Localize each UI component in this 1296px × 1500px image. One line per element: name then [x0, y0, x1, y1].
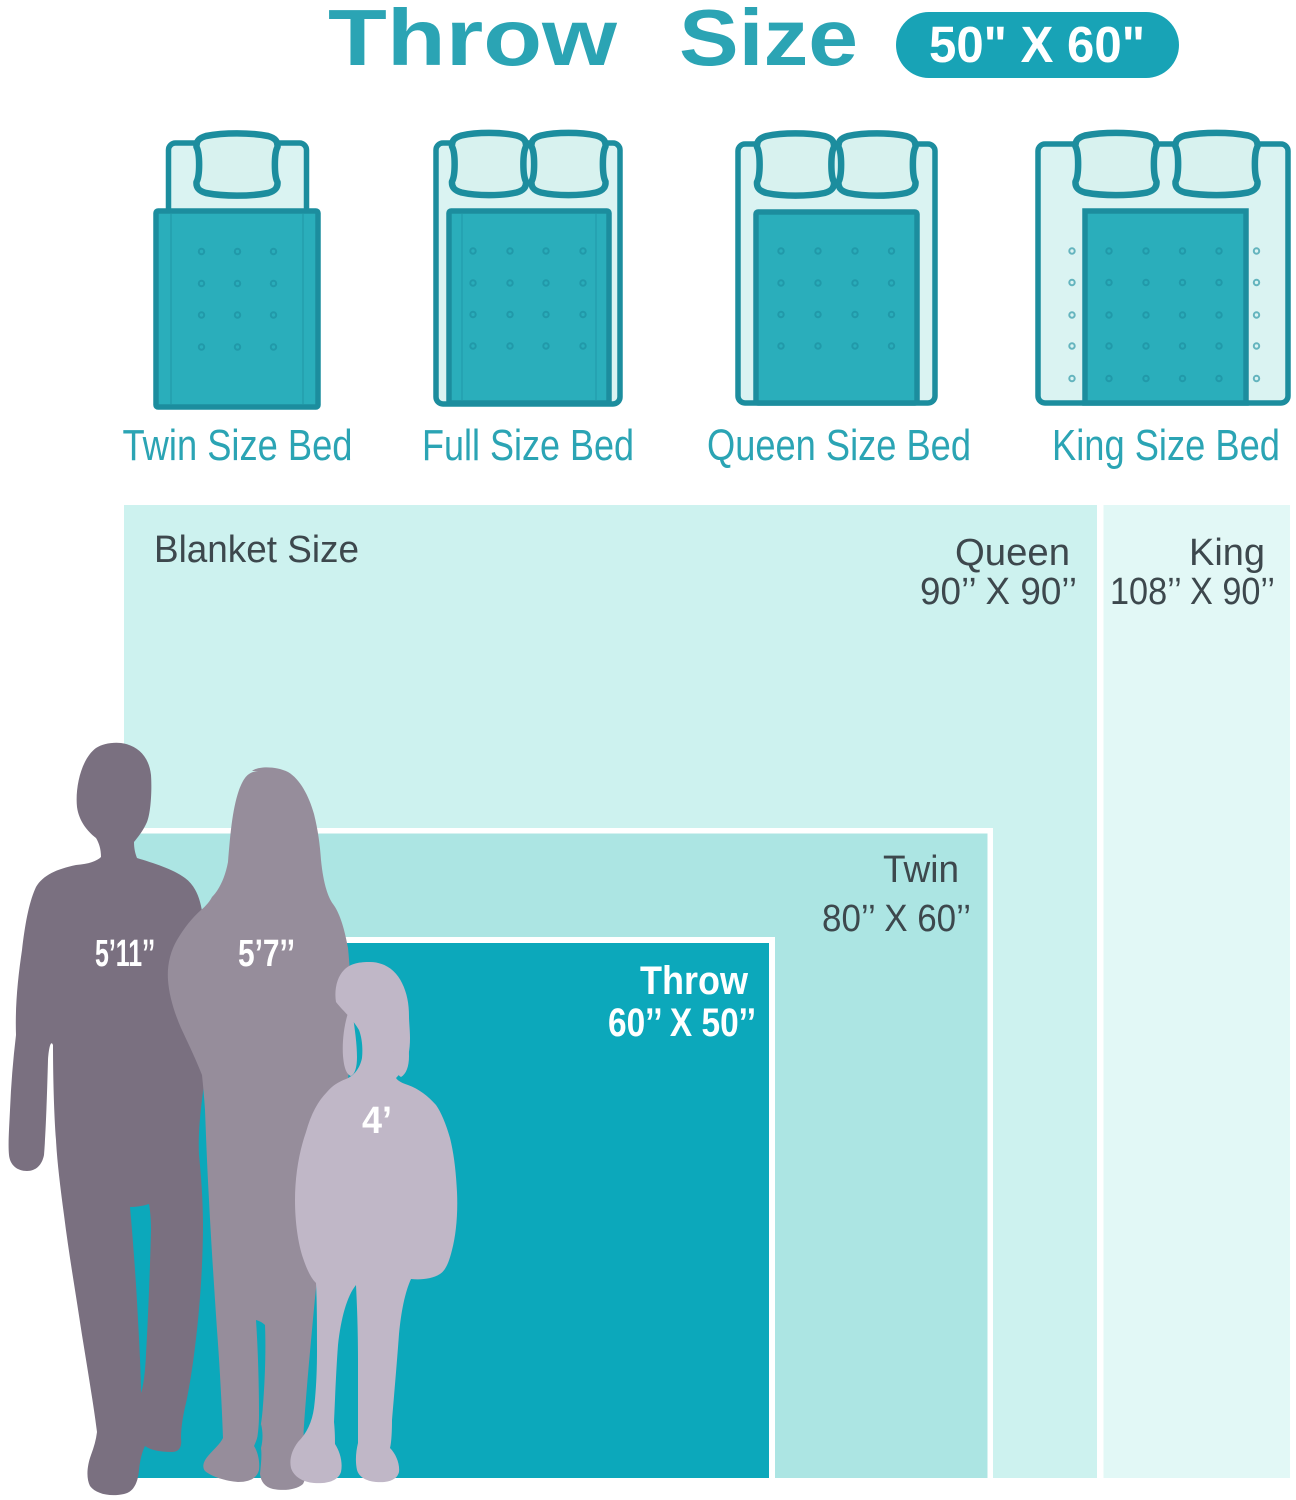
svg-text:Queen: Queen	[955, 532, 1070, 574]
svg-text:Twin: Twin	[883, 849, 959, 891]
svg-text:90’’ X 90’’: 90’’ X 90’’	[920, 571, 1077, 613]
svg-text:Full Size Bed: Full Size Bed	[422, 421, 634, 470]
svg-text:5’11’’: 5’11’’	[95, 933, 155, 975]
svg-text:King Size Bed: King Size Bed	[1052, 421, 1280, 470]
svg-text:60’’ X 50’’: 60’’ X 50’’	[608, 1001, 756, 1045]
svg-text:King: King	[1189, 532, 1265, 574]
svg-text:50" X 60": 50" X 60"	[929, 16, 1145, 73]
svg-text:Throw: Throw	[328, 0, 618, 82]
svg-text:80’’ X 60’’: 80’’ X 60’’	[822, 898, 971, 940]
svg-text:5’7’’: 5’7’’	[238, 933, 295, 975]
svg-text:Throw: Throw	[640, 959, 749, 1003]
svg-text:Twin Size Bed: Twin Size Bed	[123, 421, 353, 470]
svg-text:Size: Size	[679, 0, 858, 82]
svg-text:Queen Size Bed: Queen Size Bed	[707, 421, 971, 470]
svg-text:108’’ X 90’’: 108’’ X 90’’	[1110, 571, 1275, 613]
svg-text:Blanket Size: Blanket Size	[154, 529, 359, 571]
svg-text:4’: 4’	[362, 1100, 392, 1142]
